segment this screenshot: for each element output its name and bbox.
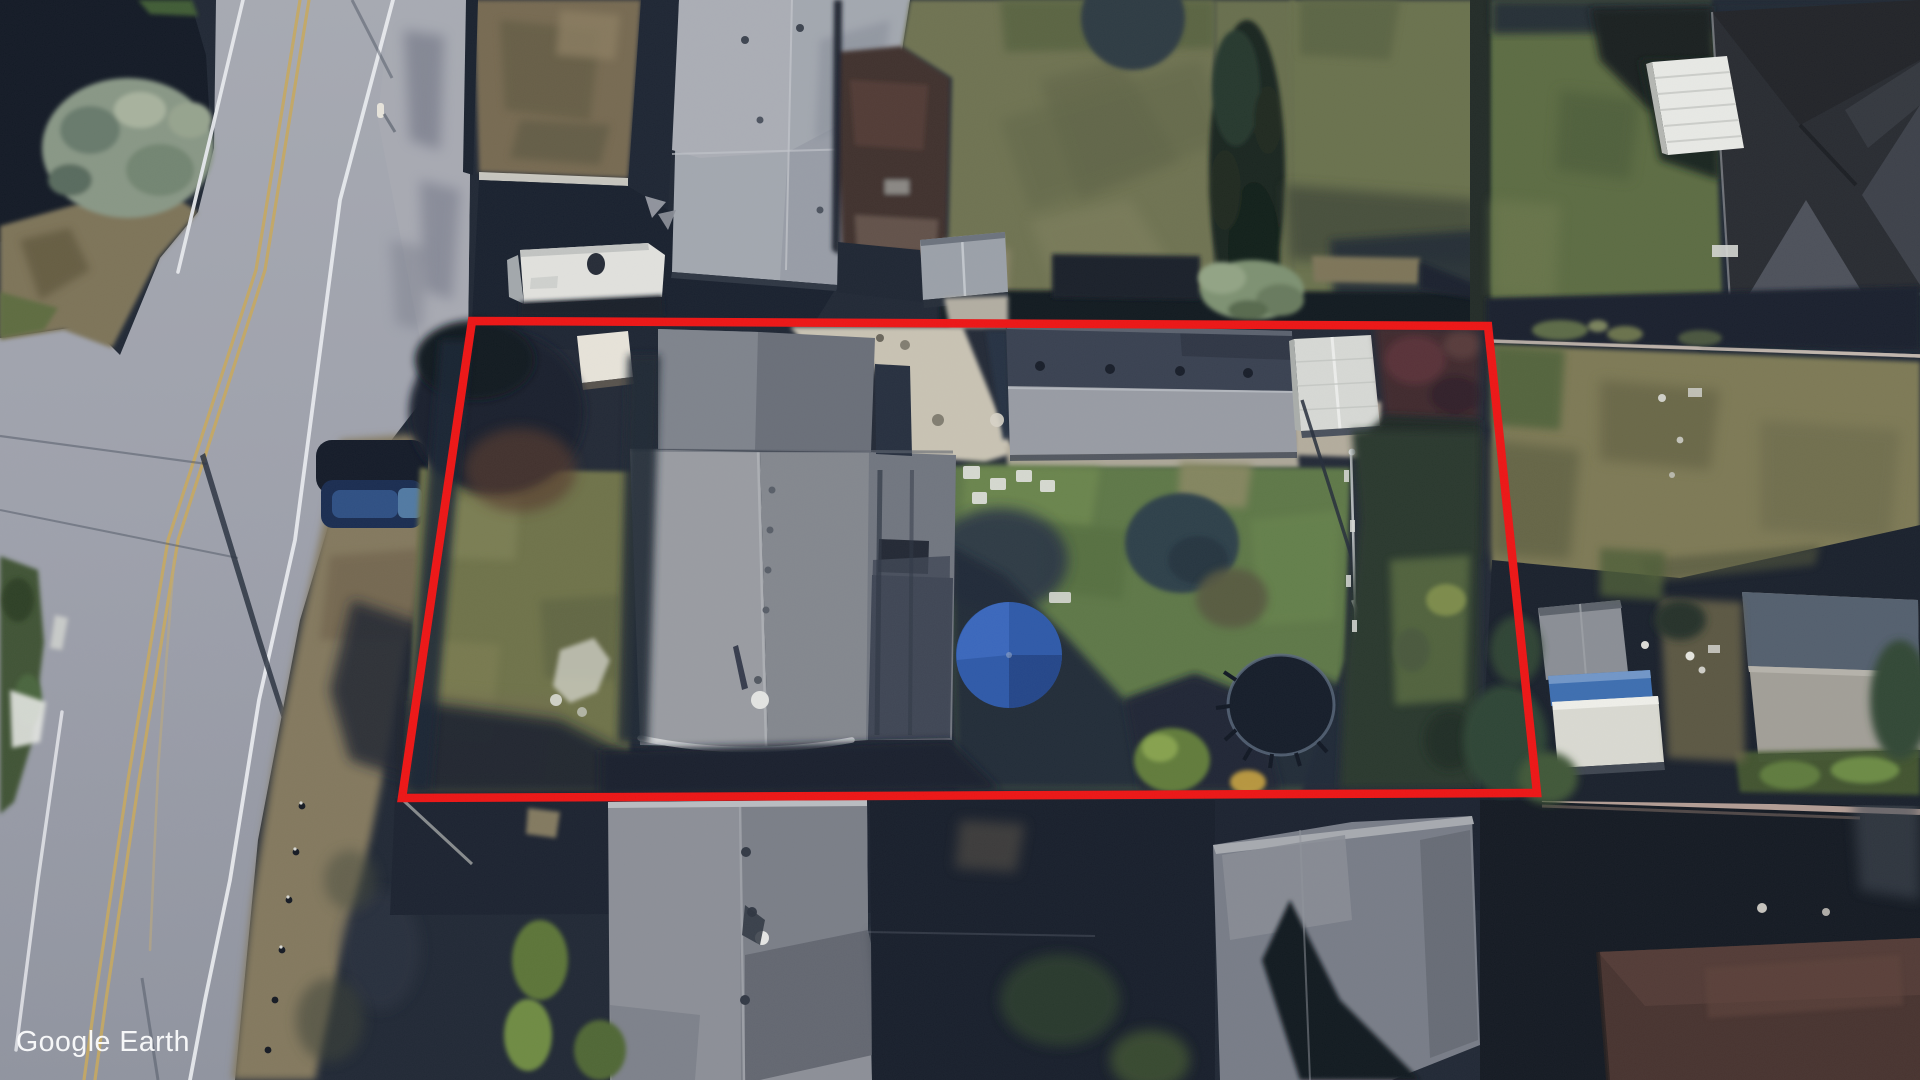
svg-text:Google Earth: Google Earth [16,1026,190,1058]
